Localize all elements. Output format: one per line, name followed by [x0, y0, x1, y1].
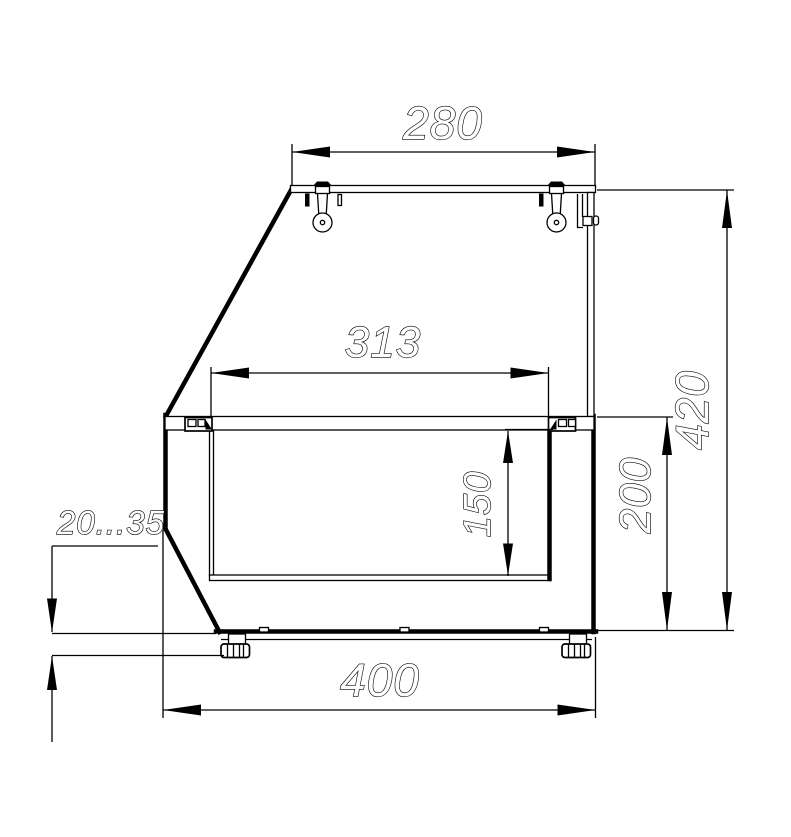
front-glass-slant-line: [166, 190, 291, 416]
dimension-base-width: 400: [163, 530, 596, 718]
bracket-cap: [314, 182, 332, 186]
dimension-inner-width: 313: [211, 318, 549, 417]
bracket-hinge-pin: [554, 220, 558, 224]
arrowhead-right: [511, 368, 549, 379]
dim-label-20-35: 20...35: [56, 504, 165, 541]
mounting-bracket-knob: [594, 216, 599, 225]
right-rail-slot: [559, 420, 567, 427]
adjustable-foot-right: [562, 634, 591, 658]
bracket-stem: [318, 194, 328, 216]
dim-label-150: 150: [457, 471, 499, 537]
bracket-tab-right: [338, 195, 342, 206]
dimension-cavity-height: 150: [457, 430, 553, 577]
worktop-band: [165, 417, 594, 431]
reference-lines: [52, 634, 224, 656]
cavity-left-wall: [210, 430, 214, 576]
extension-lines: [211, 367, 549, 417]
left-rail-profile: [185, 418, 212, 432]
dimension-lower-height: 200: [597, 417, 673, 630]
arrowhead-bottom: [662, 592, 672, 630]
arrowhead-left: [163, 705, 201, 716]
right-rail-slot: [569, 420, 576, 427]
arrowhead-bottom: [503, 544, 513, 576]
engineering-drawing: 280 313 150 200 420 400: [0, 0, 791, 837]
arrowhead-bottom: [722, 592, 732, 630]
mounting-bracket-arm: [578, 194, 584, 228]
foot-base: [221, 644, 250, 658]
adjustable-foot-left: [221, 634, 250, 658]
cavity-floor: [210, 575, 551, 581]
arrowhead-left: [211, 368, 249, 379]
dim-label-280: 280: [402, 97, 483, 149]
bracket-nut: [316, 187, 330, 194]
mounting-bracket-block: [583, 217, 592, 226]
arrowhead-left: [292, 147, 330, 158]
foot-stem: [229, 634, 246, 645]
arrowhead-right: [558, 705, 596, 716]
arrowhead-top: [503, 431, 513, 463]
bottom-clip: [400, 628, 409, 633]
dimension-top-width: 280: [292, 97, 595, 186]
dim-label-313: 313: [345, 318, 421, 367]
foot-base: [562, 644, 591, 658]
extension-lines: [292, 144, 595, 186]
bracket-cap: [548, 182, 566, 186]
drawing-sheet: 280 313 150 200 420 400: [0, 0, 791, 837]
bracket-stem: [552, 194, 562, 216]
dim-label-420: 420: [666, 370, 718, 450]
bracket-nut: [550, 187, 564, 194]
bracket-hinge-pin: [320, 220, 324, 224]
bottom-clip: [540, 628, 549, 633]
arrowhead-right: [557, 147, 595, 158]
display-cavity: [210, 430, 551, 581]
left-rail-slot: [188, 420, 196, 427]
foot-stem: [570, 634, 587, 645]
arrowhead-top: [722, 191, 732, 229]
bottom-clip: [260, 628, 269, 633]
dim-label-400: 400: [340, 654, 420, 706]
arrowhead-up: [47, 656, 57, 690]
dimension-total-height: 420: [597, 190, 734, 631]
bracket-tab-left: [539, 194, 544, 207]
left-rail-slot: [198, 420, 205, 427]
dim-label-200: 200: [611, 457, 660, 534]
bracket-tab-left: [305, 194, 310, 207]
arrowhead-down: [47, 599, 57, 633]
case-body-outline: [164, 190, 596, 632]
